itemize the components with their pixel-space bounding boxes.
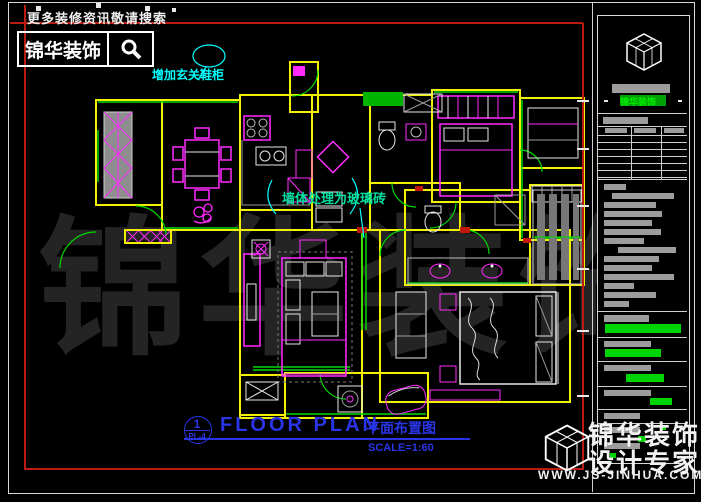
frame-bottom (25, 468, 584, 470)
table-line (598, 163, 687, 164)
divider (598, 113, 687, 114)
title-block: 锦华装饰 (597, 15, 690, 464)
search-hint-text: 更多装修资讯敬请搜索 (27, 8, 167, 27)
divider (598, 337, 687, 338)
drawing-sheet: 锦华装饰 更多装修资讯敬请搜索 锦华装饰 (0, 0, 701, 502)
value-green (650, 398, 672, 405)
frame-right (582, 23, 584, 470)
table-line (598, 142, 687, 143)
dash (604, 100, 608, 102)
company-name-green: 锦华装饰 (620, 95, 666, 106)
redacted-label (604, 341, 651, 347)
redacted-text (604, 265, 652, 271)
dim-tick (577, 205, 589, 207)
divider (598, 386, 687, 387)
dash (678, 100, 682, 102)
redacted-text (604, 256, 659, 262)
table-line (598, 135, 687, 136)
redacted-text (604, 202, 656, 208)
redacted-label (604, 365, 651, 371)
company-cube-logo-icon (625, 32, 663, 72)
redacted-text (604, 292, 656, 298)
redacted-text (604, 274, 674, 280)
brand-cube-logo-icon (543, 423, 591, 473)
redacted-text (604, 283, 634, 289)
table-header (634, 128, 656, 133)
dim-tick (172, 8, 176, 12)
redacted-text (603, 117, 648, 124)
table-line (598, 156, 687, 157)
plan-scale: SCALE=1:60 (368, 442, 434, 454)
table-header (664, 128, 684, 133)
annotation-entry: 增加玄关鞋柜 (152, 66, 224, 83)
redacted-text (604, 229, 661, 235)
redacted-text (604, 301, 629, 307)
dim-tick (577, 330, 589, 332)
dim-tick (577, 395, 589, 397)
title-underline (184, 438, 470, 440)
value-green (605, 349, 661, 357)
detail-number: 1 (184, 417, 210, 431)
brand-logo-box: 锦华装饰 (17, 31, 154, 67)
divider (598, 409, 687, 410)
annotation-partition: 墙体处理为玻璃砖 (282, 188, 386, 207)
redacted-text (604, 211, 662, 217)
search-button-cell (107, 33, 152, 65)
divider (598, 361, 687, 362)
plan-title-zh: 平面布置图 (366, 418, 436, 438)
plan-title-en: FLOOR PLAN (220, 414, 380, 437)
redacted-label (604, 315, 649, 322)
value-green (626, 374, 664, 382)
dim-tick (577, 268, 589, 270)
divider (598, 311, 687, 312)
table-line (598, 149, 687, 150)
project-value-green (605, 324, 681, 333)
magnifier-icon (119, 37, 143, 61)
detail-bubble-line (184, 430, 210, 431)
redacted-text (604, 220, 652, 226)
redacted-text (612, 84, 670, 93)
redacted-text (604, 238, 644, 244)
dim-tick (577, 100, 589, 102)
table-line (598, 170, 687, 171)
table-header (605, 128, 627, 133)
divider (598, 179, 687, 180)
brand-logo-text: 锦华装饰 (19, 33, 107, 65)
brand-website: WWW.JS-JINHUA.COM (538, 468, 701, 482)
redacted-text (618, 247, 676, 253)
table-line (598, 126, 687, 127)
dim-tick (577, 148, 589, 150)
table-line (631, 126, 632, 179)
redacted-text (604, 184, 626, 190)
redacted-text (612, 193, 674, 199)
table-line (661, 126, 662, 179)
frame-left (24, 5, 26, 470)
redacted-label (604, 390, 651, 396)
table-line (598, 177, 687, 178)
